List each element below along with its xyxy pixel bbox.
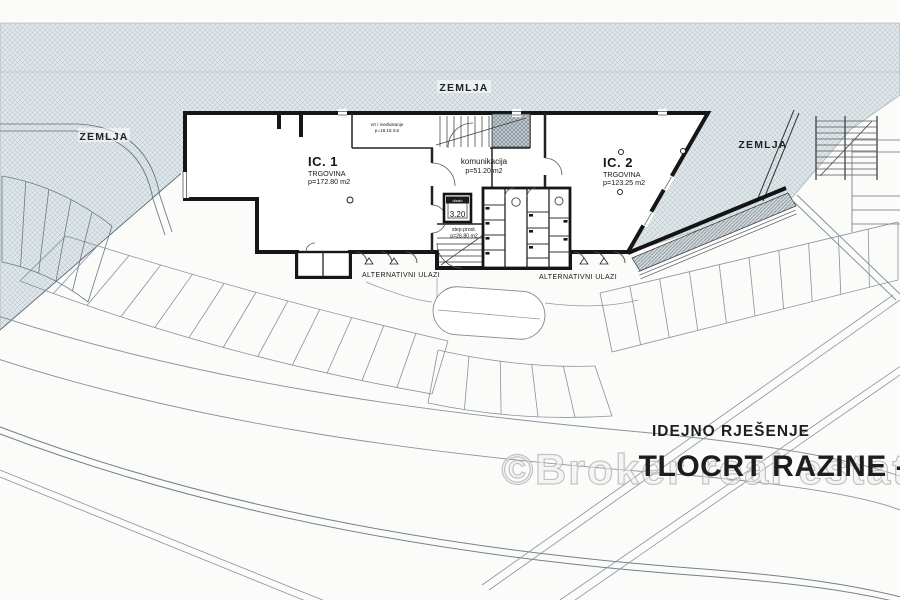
label-unit1-area: p=172.80 m2 [308, 177, 350, 186]
label-circulation-area: p=51.20 m2 [465, 168, 502, 175]
label-zemlja-left: ZEMLJA [79, 131, 128, 143]
label-entrances-left: ALTERNATIVNI ULAZI [362, 272, 440, 279]
label-elevator: dizalo [453, 199, 463, 203]
wall-stub [277, 113, 281, 129]
label-garden-area: p=18.15 m2 [375, 128, 400, 133]
title-block: ©Broker real estate IDEJNO RJEŠENJE TLOC… [502, 422, 900, 494]
label-garden: vrt / međustanje [371, 122, 404, 127]
label-zemlja-right: ZEMLJA [738, 139, 787, 151]
traffic-island [431, 285, 546, 341]
label-staircase: step.prost. [452, 227, 476, 233]
sanitary-block [483, 188, 570, 268]
label-zemlja-top: ZEMLJA [439, 82, 488, 94]
drawing-title: TLOCRT RAZINE -1 [639, 450, 900, 483]
wall-stub [299, 113, 303, 137]
label-staircase-area: p=26.80 m2 [450, 234, 478, 240]
building [181, 109, 708, 277]
label-elevator-size: 3.20 [450, 210, 466, 219]
project-phase: IDEJNO RJEŠENJE [652, 422, 810, 440]
label-unit2-id: IC. 2 [603, 155, 633, 170]
label-unit1-id: IC. 1 [308, 154, 338, 169]
label-circulation: komunikacija [461, 157, 508, 166]
label-unit2-area: p=123.25 m2 [603, 178, 645, 187]
label-entrances-right: ALTERNATIVNI ULAZI [539, 274, 617, 281]
floor-plan-page: ZEMLJA ZEMLJA ZEMLJA IC. 1 TRGOVINA p=17… [0, 0, 900, 600]
parking-cells-topright [852, 140, 900, 232]
floor-plan-drawing: ZEMLJA ZEMLJA ZEMLJA IC. 1 TRGOVINA p=17… [0, 0, 900, 600]
